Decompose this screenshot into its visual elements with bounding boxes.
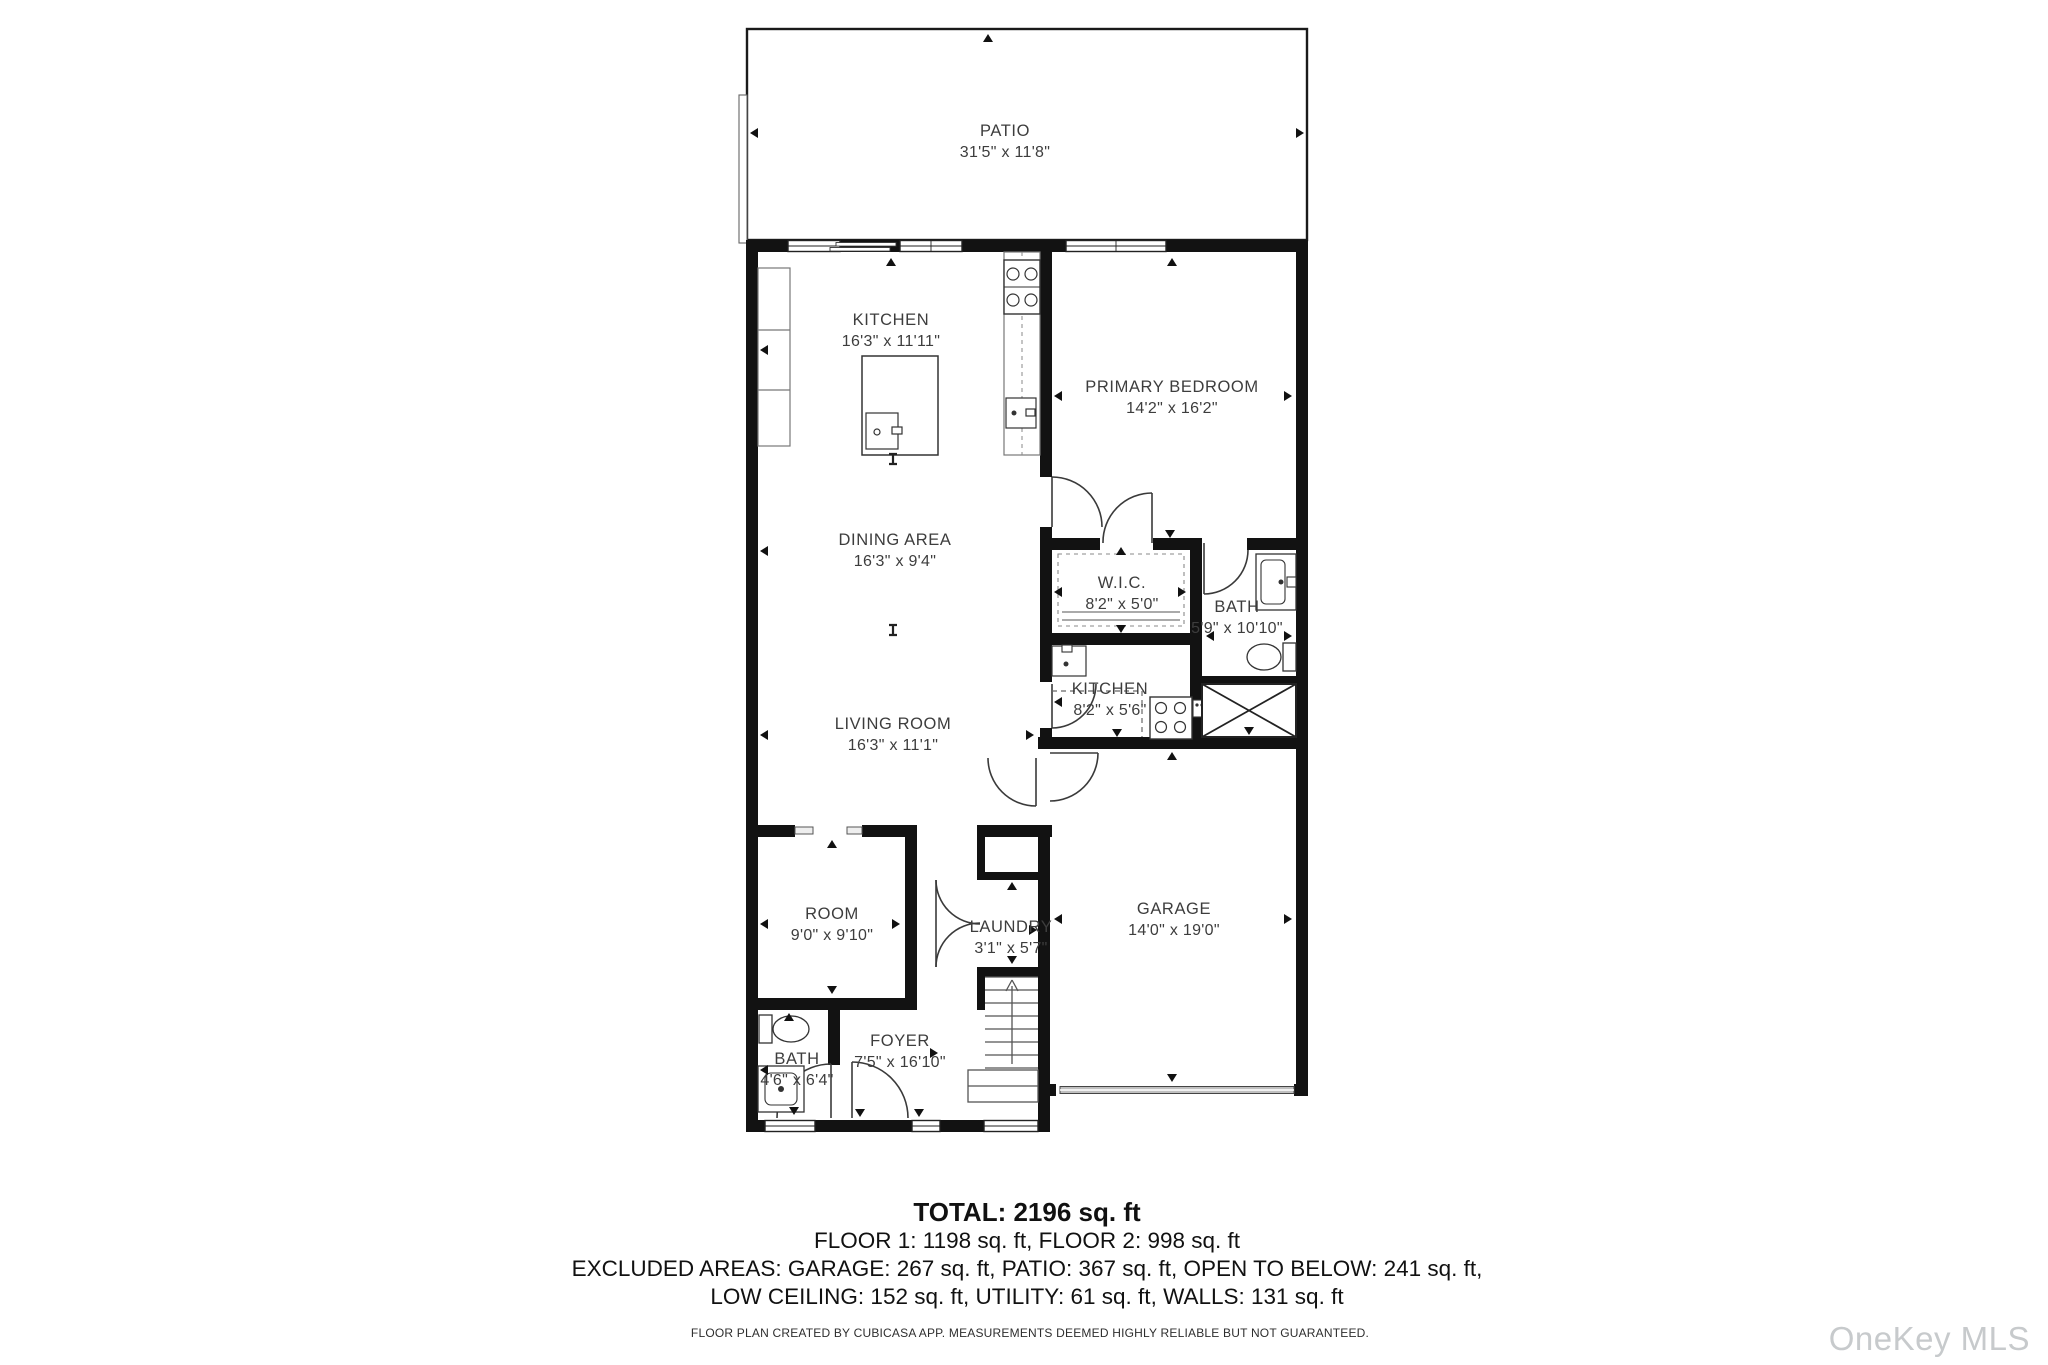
excluded-areas-text-2: LOW CEILING: 152 sq. ft, UTILITY: 61 sq.… [572, 1283, 1483, 1311]
cabinet-run-icon [758, 268, 790, 446]
kitchen-fixtures [758, 252, 1040, 455]
onekey-mls-watermark: OneKey MLS [1829, 1320, 2030, 1358]
vanity-sink-icon [1256, 554, 1296, 610]
patio-step [739, 95, 747, 243]
door-garage-entry [1050, 753, 1098, 801]
window-bedroom [1066, 241, 1166, 252]
stairs-up-arrow [1006, 980, 1018, 1064]
door-primary-bedroom [1052, 477, 1102, 527]
patio-outline [739, 29, 1307, 243]
floor-areas-text: FLOOR 1: 1198 sq. ft, FLOOR 2: 998 sq. f… [572, 1227, 1483, 1255]
room-sidelight-left [795, 827, 813, 834]
kitchen-2-stove-icon [1150, 697, 1192, 739]
kitchen-2-sink-icon [1052, 645, 1086, 676]
windows [765, 241, 1166, 1132]
kitchen-2-fixtures [1052, 645, 1206, 739]
toilet-icon [1247, 643, 1296, 671]
toilet-icon [759, 1015, 809, 1043]
area-summary: TOTAL: 2196 sq. ft FLOOR 1: 1198 sq. ft,… [572, 1198, 1483, 1311]
stove-icon [1004, 260, 1040, 314]
window-foyer [912, 1121, 940, 1132]
door-wic [1103, 493, 1152, 543]
kitchen-sink-icon [1006, 398, 1036, 428]
room-sidelight-right [847, 827, 862, 834]
wic-closet-rails [1058, 554, 1184, 626]
excluded-areas-text: EXCLUDED AREAS: GARAGE: 267 sq. ft, PATI… [572, 1255, 1483, 1283]
total-area-text: TOTAL: 2196 sq. ft [572, 1198, 1483, 1227]
kitchen-island-icon [862, 356, 938, 455]
door-laundry-double [936, 880, 980, 967]
floor-plan-drawing [0, 0, 2048, 1365]
window-bath-lower [765, 1121, 815, 1132]
wall-right [1296, 240, 1308, 1096]
disclaimer-text: FLOOR PLAN CREATED BY CUBICASA APP. MEAS… [691, 1326, 1369, 1340]
door-hall [988, 758, 1036, 806]
door-bath-upper [1204, 543, 1248, 594]
bath-lower-fixtures [758, 1015, 809, 1112]
floor-plan-page: PATIO 31'5" x 11'8" KITCHEN 16'3" x 11'1… [0, 0, 2048, 1365]
bath-upper-fixtures [1247, 554, 1296, 671]
window-stairwell [984, 1121, 1038, 1132]
counter-edge [1052, 691, 1142, 737]
position-marker-icons [889, 454, 897, 635]
garage-door [1056, 1084, 1294, 1096]
window-kitchen-2 [900, 241, 962, 252]
